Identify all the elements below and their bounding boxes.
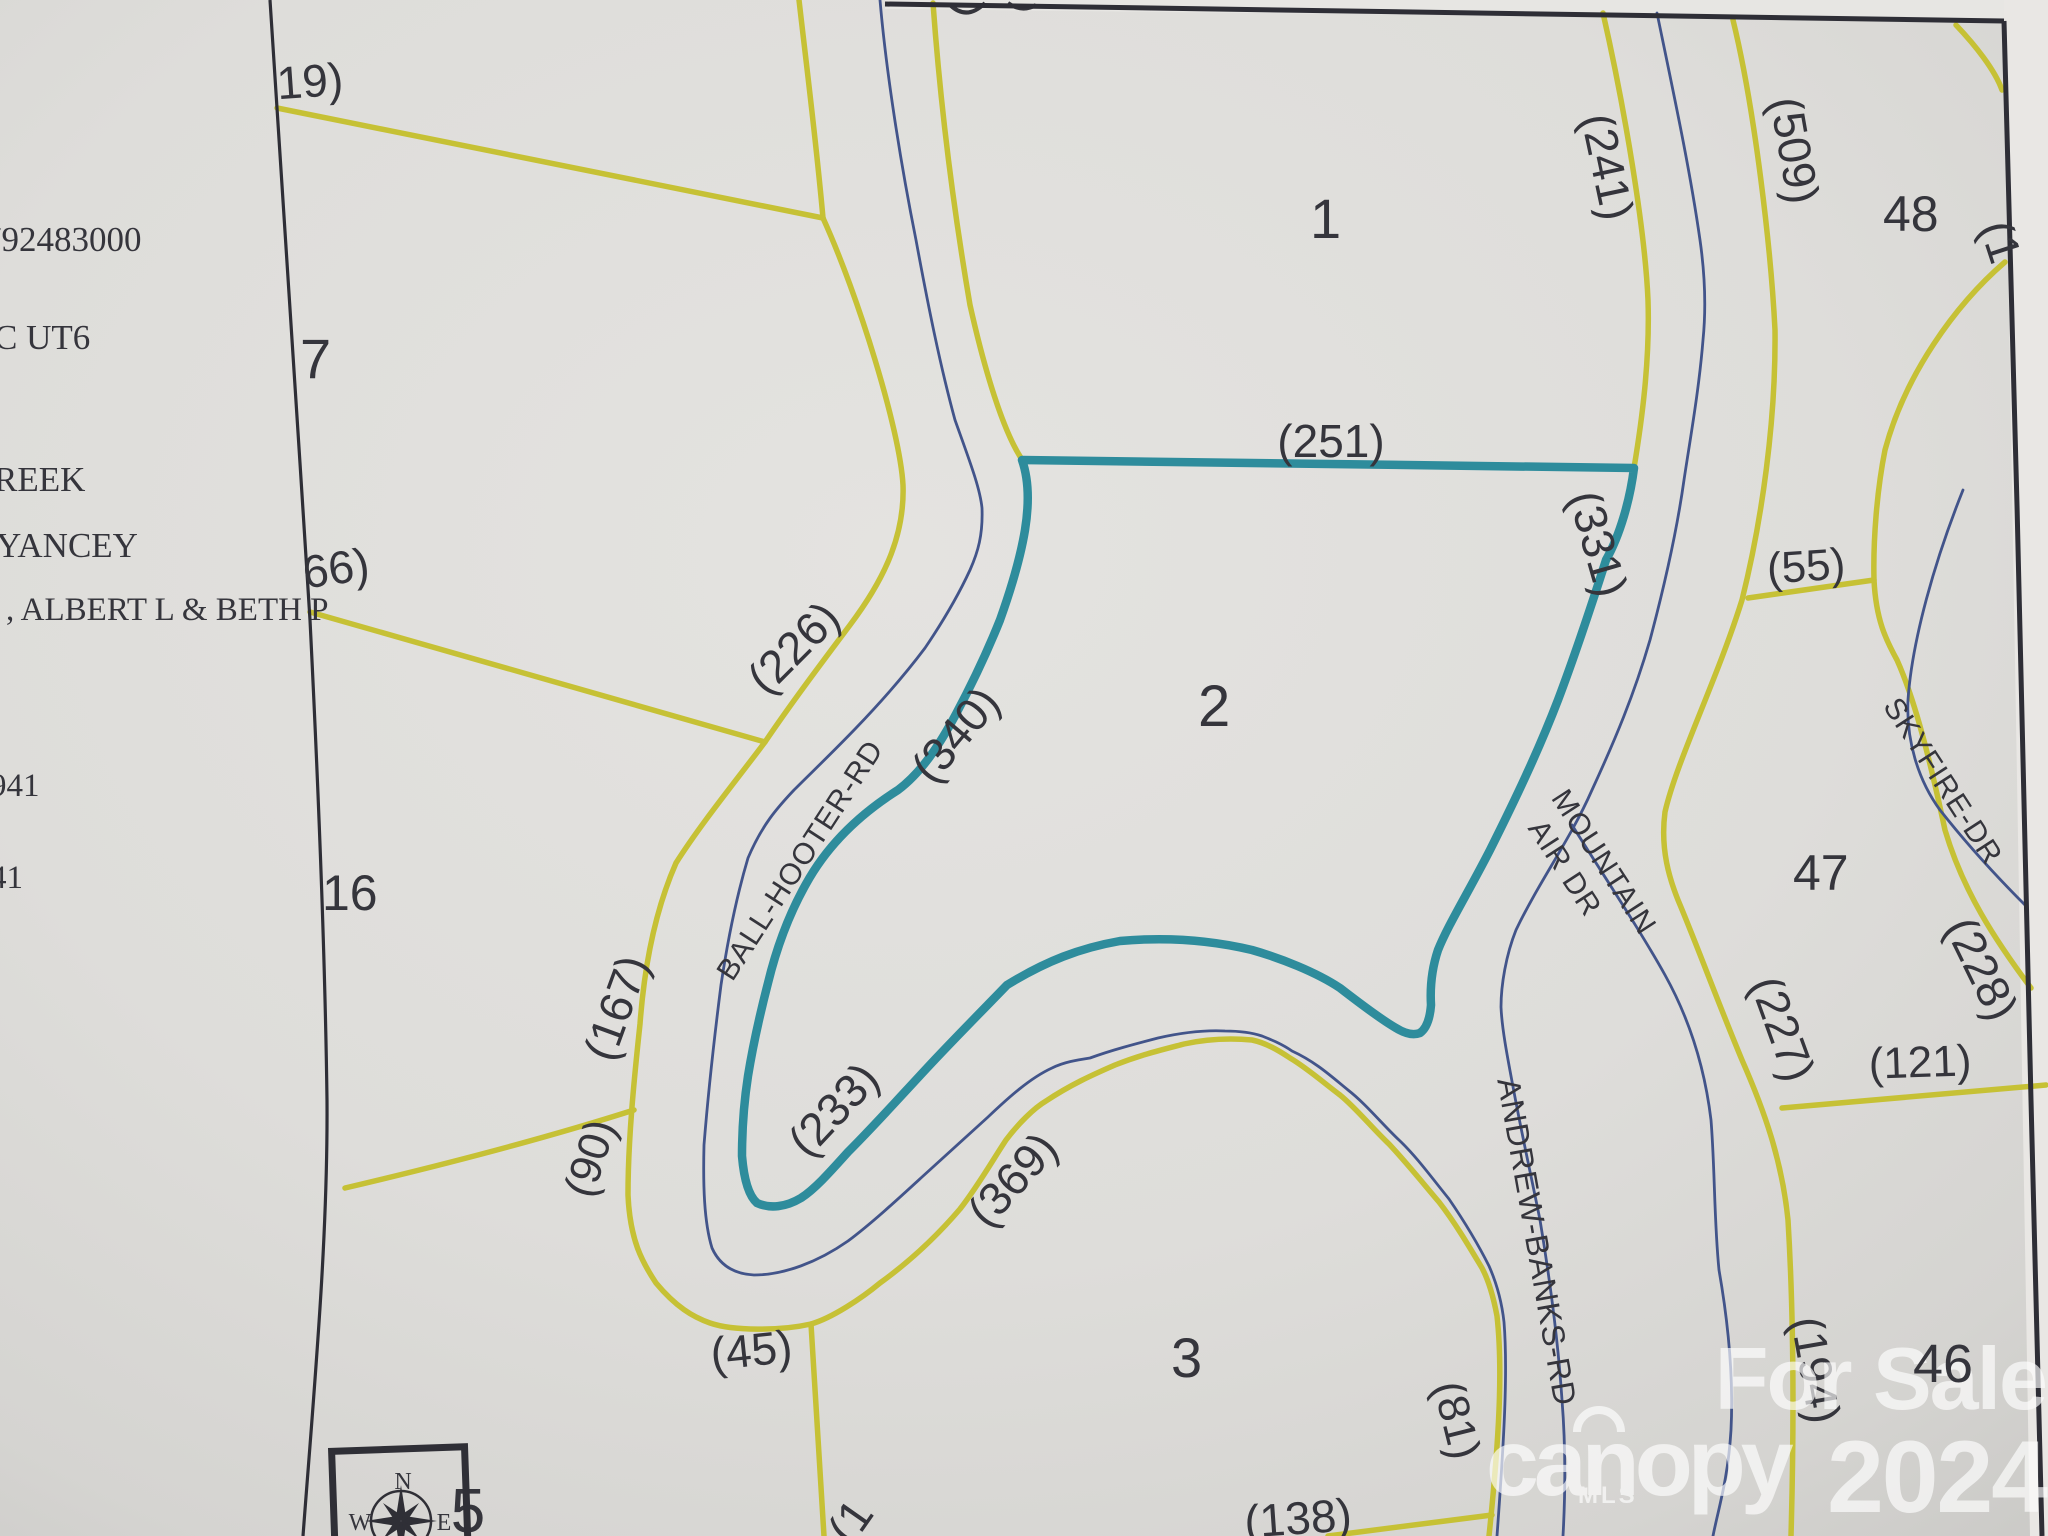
svg-text:48: 48 [1883,186,1939,242]
svg-text:(251): (251) [1277,415,1384,467]
svg-text:1: 1 [1310,187,1341,250]
svg-text:(45): (45) [708,1320,795,1380]
svg-text:(55): (55) [1765,539,1846,593]
svg-text:E: E [437,1510,452,1536]
svg-text:C UT6: C UT6 [0,318,90,357]
svg-text:3: 3 [1171,1326,1202,1389]
svg-text:W: W [349,1510,372,1536]
svg-text:2: 2 [1198,674,1230,739]
svg-text:REEK: REEK [0,460,85,499]
svg-text:MLS: MLS [1578,1482,1638,1509]
svg-text:YANCEY: YANCEY [0,526,138,565]
svg-text:46: 46 [1913,1334,1973,1394]
svg-text:(138): (138) [1243,1488,1354,1536]
svg-text:66): 66) [299,538,372,599]
svg-text:2024: 2024 [1827,1420,2048,1534]
svg-text:(121): (121) [1868,1036,1972,1089]
svg-text:, ALBERT L & BETH P: , ALBERT L & BETH P [6,592,329,628]
svg-text:41: 41 [0,860,23,896]
svg-text:7: 7 [300,327,331,390]
svg-text:19): 19) [275,53,345,110]
svg-text:16: 16 [322,865,378,921]
svg-text:941: 941 [0,768,40,804]
svg-text:canopy: canopy [1486,1410,1794,1516]
svg-text:792483000: 792483000 [0,220,142,259]
svg-text:47: 47 [1793,845,1849,901]
